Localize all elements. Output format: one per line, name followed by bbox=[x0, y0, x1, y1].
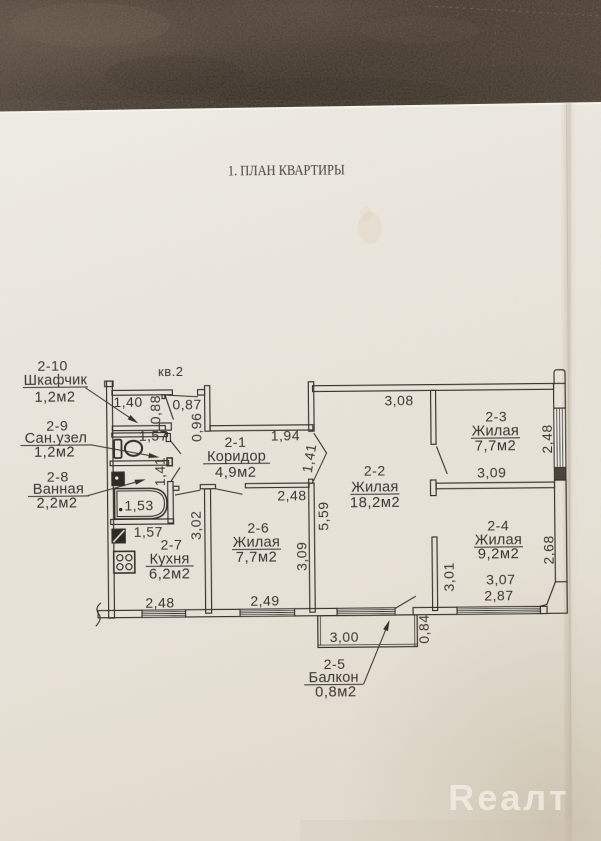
svg-text:0,84: 0,84 bbox=[416, 614, 432, 643]
svg-text:2-2: 2-2 bbox=[364, 462, 386, 478]
svg-text:2,48: 2,48 bbox=[539, 424, 555, 453]
svg-text:2,48: 2,48 bbox=[277, 487, 306, 503]
svg-text:0,8м2: 0,8м2 bbox=[315, 684, 357, 700]
svg-text:2-6: 2-6 bbox=[247, 520, 269, 536]
svg-text:1,41: 1,41 bbox=[152, 457, 168, 486]
svg-text:7,7м2: 7,7м2 bbox=[475, 438, 517, 454]
svg-text:2-1: 2-1 bbox=[224, 434, 246, 450]
svg-text:1,40: 1,40 bbox=[113, 394, 142, 410]
svg-text:Жилая: Жилая bbox=[351, 479, 398, 495]
svg-text:0,88: 0,88 bbox=[147, 395, 163, 424]
svg-text:2,49: 2,49 bbox=[250, 592, 279, 608]
svg-text:1,57: 1,57 bbox=[134, 524, 163, 540]
svg-text:Жилая: Жилая bbox=[233, 534, 280, 550]
svg-text:1,94: 1,94 bbox=[271, 427, 300, 443]
svg-text:3,08: 3,08 bbox=[384, 392, 413, 408]
svg-text:18,2м2: 18,2м2 bbox=[350, 495, 400, 511]
svg-text:9,2м2: 9,2м2 bbox=[478, 546, 520, 562]
svg-text:1,2м2: 1,2м2 bbox=[34, 444, 75, 460]
svg-text:2,48: 2,48 bbox=[145, 594, 174, 610]
svg-text:3,02: 3,02 bbox=[188, 511, 204, 540]
svg-text:3,09: 3,09 bbox=[477, 464, 506, 480]
svg-text:3,07: 3,07 bbox=[486, 571, 515, 587]
svg-text:1,57: 1,57 bbox=[139, 428, 168, 444]
svg-text:Коридор: Коридор bbox=[207, 449, 266, 466]
svg-text:0,87: 0,87 bbox=[172, 396, 201, 412]
svg-text:7,7м2: 7,7м2 bbox=[236, 550, 278, 566]
svg-text:кв.2: кв.2 bbox=[158, 364, 184, 379]
svg-text:1,2м2: 1,2м2 bbox=[34, 389, 75, 405]
svg-text:2-7: 2-7 bbox=[160, 536, 182, 552]
svg-text:6,2м2: 6,2м2 bbox=[149, 566, 191, 582]
svg-text:4,9м2: 4,9м2 bbox=[215, 465, 257, 481]
svg-text:2,2м2: 2,2м2 bbox=[36, 495, 77, 511]
svg-text:1,53: 1,53 bbox=[124, 497, 153, 513]
svg-text:Жилая: Жилая bbox=[472, 423, 519, 439]
svg-text:2-4: 2-4 bbox=[487, 517, 509, 533]
svg-text:Кухня: Кухня bbox=[149, 551, 189, 567]
svg-text:3,00: 3,00 bbox=[330, 629, 359, 645]
svg-text:5,59: 5,59 bbox=[315, 501, 331, 530]
svg-text:3,01: 3,01 bbox=[441, 562, 457, 591]
svg-text:3,09: 3,09 bbox=[293, 542, 309, 571]
svg-text:1. ПЛАН КВАРТИРЫ: 1. ПЛАН КВАРТИРЫ bbox=[228, 162, 345, 179]
svg-text:Reaлт: Reaлт bbox=[448, 777, 570, 818]
svg-text:2,87: 2,87 bbox=[484, 587, 513, 603]
svg-text:Шкафчик: Шкафчик bbox=[24, 372, 88, 389]
svg-text:2-3: 2-3 bbox=[485, 408, 507, 424]
svg-text:0,96: 0,96 bbox=[188, 413, 204, 442]
svg-text:2,68: 2,68 bbox=[540, 535, 556, 564]
